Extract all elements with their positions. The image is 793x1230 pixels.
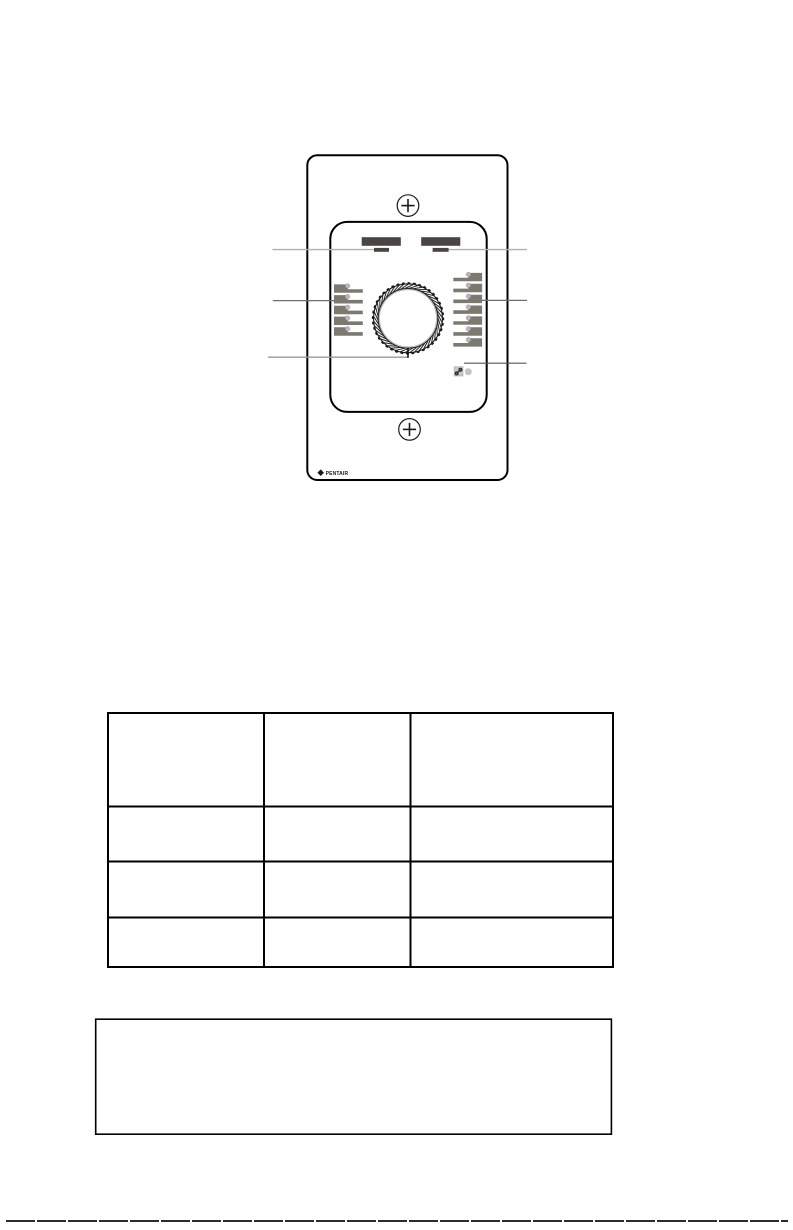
svg-text:PENTAIR: PENTAIR bbox=[326, 471, 349, 477]
